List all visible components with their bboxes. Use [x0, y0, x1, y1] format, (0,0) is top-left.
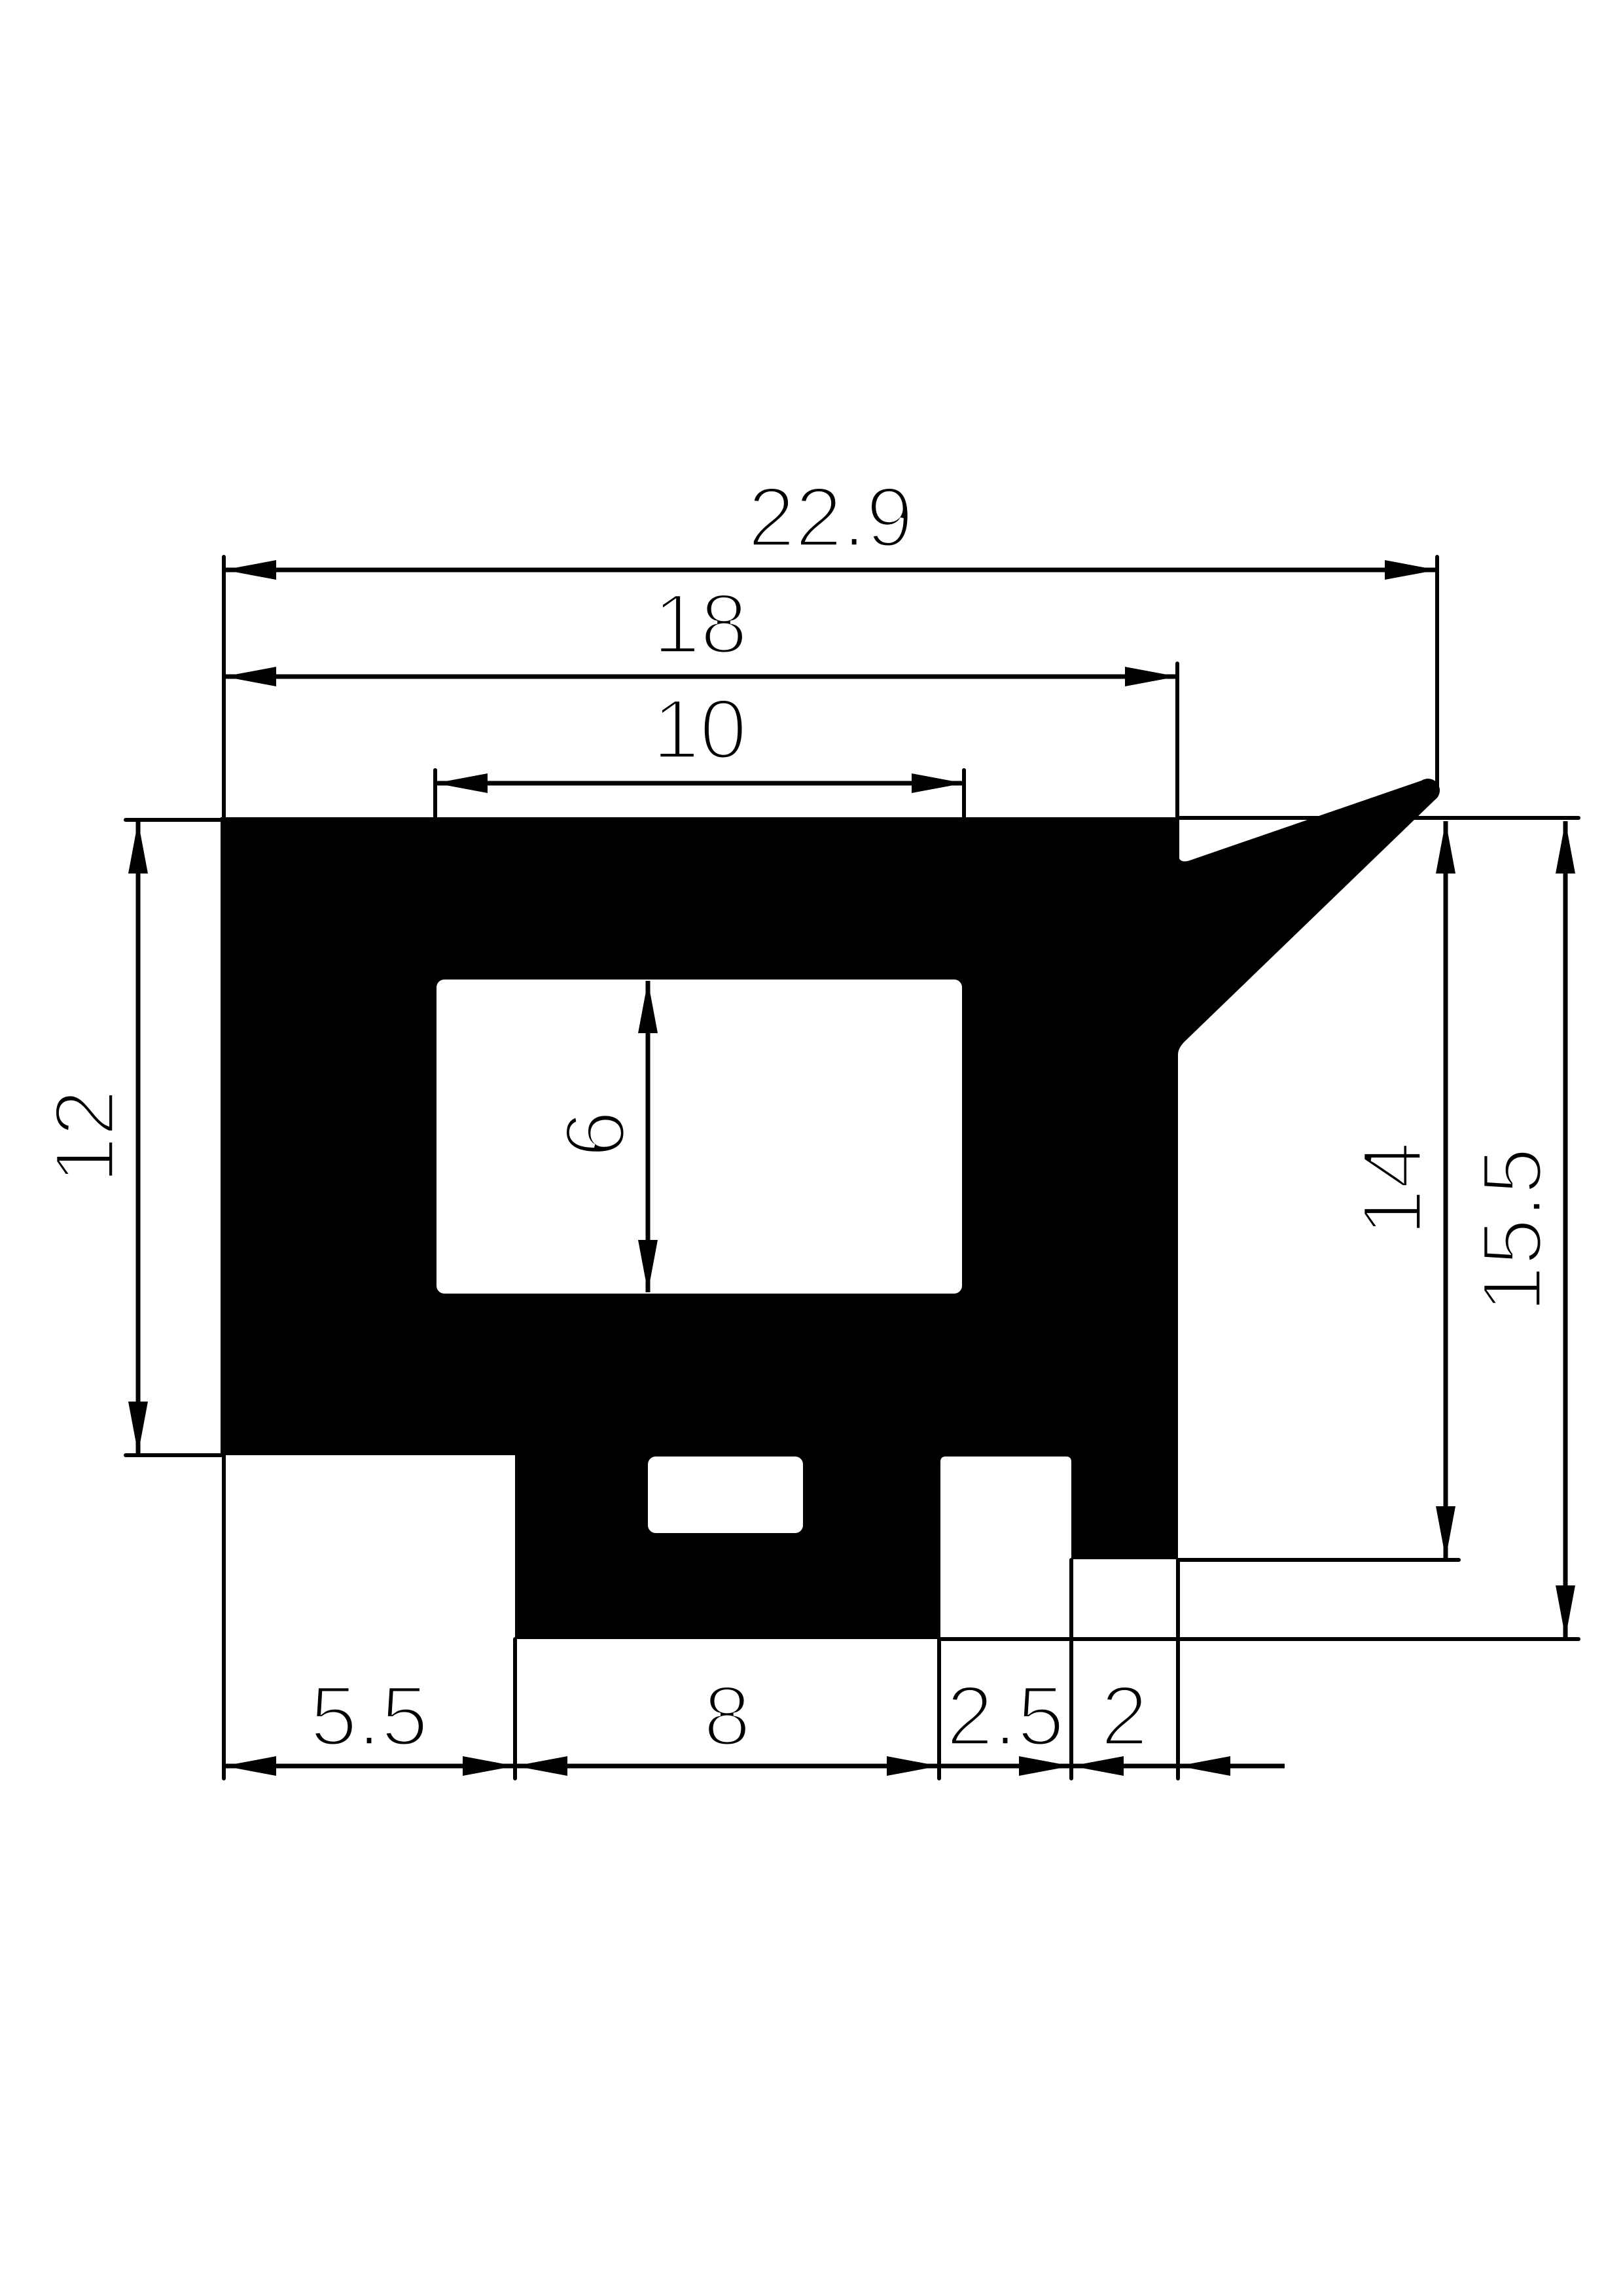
- svg-text:2.5: 2.5: [946, 1668, 1065, 1763]
- svg-text:18: 18: [653, 576, 748, 671]
- svg-text:15.5: 15.5: [1464, 1147, 1560, 1313]
- svg-text:6: 6: [547, 1110, 643, 1157]
- svg-text:22.9: 22.9: [747, 469, 913, 565]
- svg-text:2: 2: [1101, 1668, 1148, 1763]
- svg-text:12: 12: [37, 1089, 132, 1184]
- svg-text:14: 14: [1344, 1142, 1440, 1237]
- svg-text:8: 8: [704, 1668, 751, 1763]
- svg-text:10: 10: [652, 681, 747, 777]
- svg-text:5.5: 5.5: [310, 1668, 429, 1763]
